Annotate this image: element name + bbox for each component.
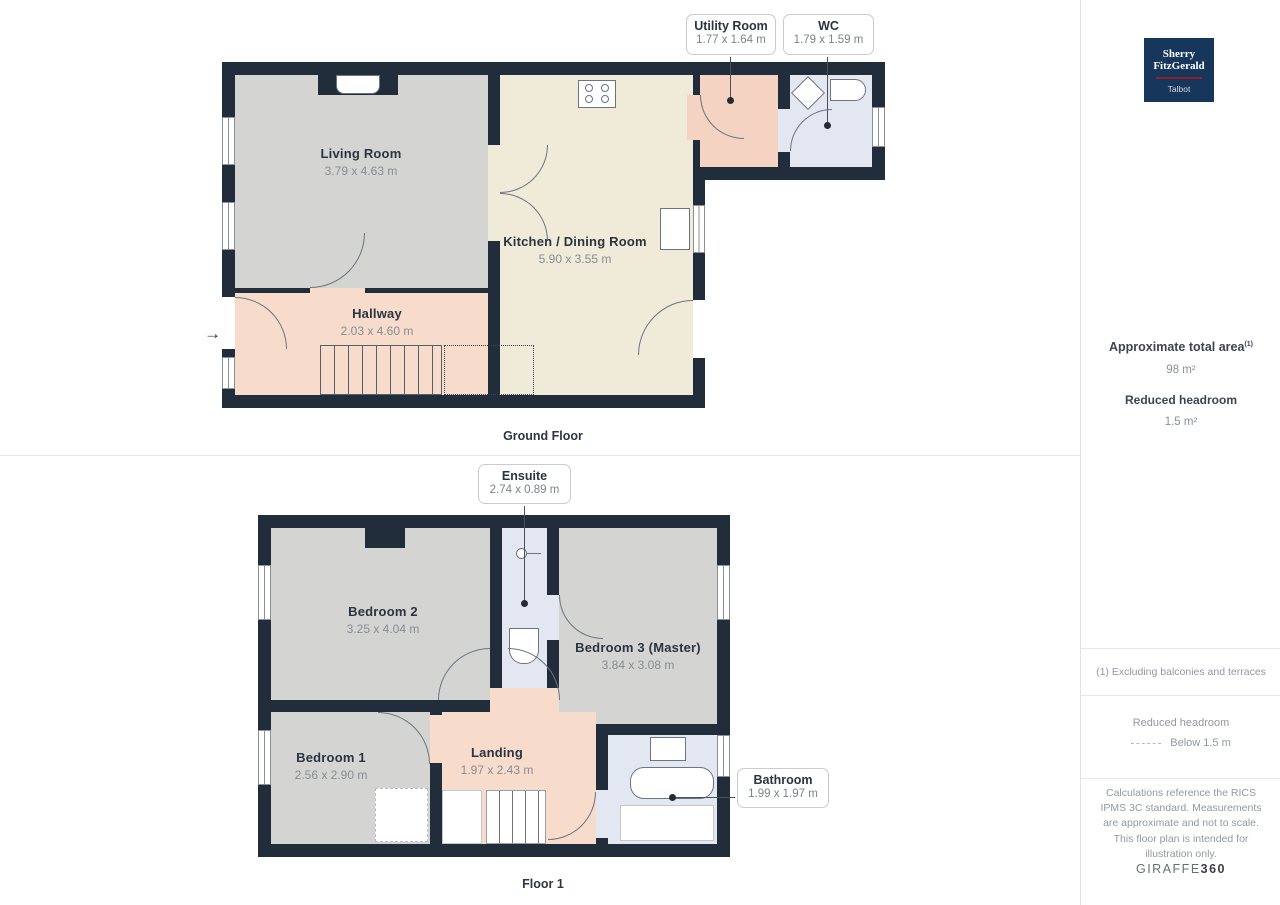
bathroom-sink-icon xyxy=(650,737,686,761)
leader-dot-utility xyxy=(727,97,734,104)
room-dims: 2.56 x 2.90 m xyxy=(256,768,406,782)
callout-name: Bathroom xyxy=(738,773,828,787)
logo-subtitle: Talbot xyxy=(1144,84,1214,94)
floorplan-page: Living Room 3.79 x 4.63 m Kitchen / Dini… xyxy=(0,0,1280,905)
room-dims: 3.79 x 4.63 m xyxy=(286,164,436,178)
fireplace-icon xyxy=(336,75,380,94)
brand-regular: GIRAFFE xyxy=(1136,862,1201,876)
room-dims: 3.25 x 4.04 m xyxy=(308,622,458,636)
room-label-landing: Landing 1.97 x 2.43 m xyxy=(422,745,572,777)
hob-ring-icon xyxy=(601,95,609,103)
room-name: Bedroom 2 xyxy=(308,604,458,619)
headroom-value: 1.5 m² xyxy=(1081,416,1280,428)
logo-line2: FitzGerald xyxy=(1144,61,1214,73)
window-living-2 xyxy=(222,202,235,250)
floor-1-caption: Floor 1 xyxy=(483,877,603,891)
window-hallway xyxy=(222,357,235,389)
door-gap-garden xyxy=(693,300,705,358)
room-dims: 3.84 x 3.08 m xyxy=(553,658,723,672)
area-summary: Approximate total area(1) 98 m² Reduced … xyxy=(1081,340,1280,428)
callout-bathroom: Bathroom 1.99 x 1.97 m xyxy=(737,768,829,808)
entrance-arrow-icon: → xyxy=(204,324,221,344)
callout-name: Utility Room xyxy=(687,19,775,33)
callout-name: Ensuite xyxy=(479,469,570,483)
door-gap-ensuite xyxy=(547,595,559,640)
leader-dot-ensuite xyxy=(521,600,528,607)
room-living xyxy=(235,75,488,288)
footnote: (1) Excluding balconies and terraces xyxy=(1089,666,1273,678)
room-dims: 2.03 x 4.60 m xyxy=(302,324,452,338)
chimney-notch xyxy=(365,528,405,548)
callout-dims: 1.79 x 1.59 m xyxy=(784,34,873,46)
room-name: Landing xyxy=(422,745,572,760)
leader-bathroom xyxy=(672,797,737,798)
room-label-bedroom2: Bedroom 2 3.25 x 4.04 m xyxy=(308,604,458,636)
headroom-title: Reduced headroom xyxy=(1081,393,1280,407)
callout-dims: 2.74 x 0.89 m xyxy=(479,484,570,496)
door-gap-bathroom xyxy=(596,790,608,838)
logo-accent-rule xyxy=(1156,77,1202,79)
room-name: Kitchen / Dining Room xyxy=(485,234,665,249)
shower-tray-icon xyxy=(620,805,714,841)
area-value: 98 m² xyxy=(1081,364,1280,376)
legend-title: Reduced headroom xyxy=(1089,717,1273,729)
window-living-1 xyxy=(222,117,235,165)
callout-ensuite: Ensuite 2.74 x 0.89 m xyxy=(478,464,571,504)
shower-line xyxy=(527,553,541,554)
room-label-hallway: Hallway 2.03 x 4.60 m xyxy=(302,306,452,338)
area-superscript: (1) xyxy=(1244,341,1253,348)
hob-ring-icon xyxy=(585,84,593,92)
dashed-line-icon xyxy=(1131,743,1161,744)
sidebar: Sherry FitzGerald Talbot Approximate tot… xyxy=(1080,0,1280,905)
ground-floor-caption: Ground Floor xyxy=(483,429,603,443)
stairs-ground xyxy=(320,345,442,395)
room-dims: 5.90 x 3.55 m xyxy=(485,252,665,266)
floor-1-plan xyxy=(258,515,730,857)
room-label-kitchen: Kitchen / Dining Room 5.90 x 3.55 m xyxy=(485,234,665,266)
room-name: Living Room xyxy=(286,146,436,161)
door-gap-entrance xyxy=(222,297,235,349)
sidebar-divider-3 xyxy=(1081,778,1280,779)
callout-utility: Utility Room 1.77 x 1.64 m xyxy=(686,14,776,55)
brand-bold: 360 xyxy=(1201,862,1226,876)
leader-dot-bathroom xyxy=(669,794,676,801)
door-gap-living-kitchen xyxy=(488,145,500,241)
wardrobe-dashed xyxy=(375,788,428,842)
room-label-bedroom3: Bedroom 3 (Master) 3.84 x 3.08 m xyxy=(553,640,723,672)
window-bedroom2 xyxy=(258,565,271,620)
area-title: Approximate total area(1) xyxy=(1081,340,1280,354)
agency-logo: Sherry FitzGerald Talbot xyxy=(1144,38,1214,102)
callout-dims: 1.99 x 1.97 m xyxy=(738,788,828,800)
room-name: Hallway xyxy=(302,306,452,321)
hob-icon xyxy=(578,80,616,108)
giraffe360-brand: GIRAFFE360 xyxy=(1081,862,1280,876)
window-wc xyxy=(872,107,885,147)
sidebar-divider-2 xyxy=(1081,695,1280,696)
leader-dot-wc xyxy=(824,122,831,129)
window-bedroom3 xyxy=(717,565,730,620)
legend-row: Below 1.5 m xyxy=(1081,737,1280,749)
callout-name: WC xyxy=(784,19,873,33)
window-kitchen xyxy=(693,205,705,253)
hob-ring-icon xyxy=(601,84,609,92)
door-gap-living-hall xyxy=(310,288,365,293)
leader-ensuite xyxy=(524,503,525,603)
window-bathroom xyxy=(717,735,730,777)
sidebar-divider-1 xyxy=(1081,648,1280,649)
room-name: Bedroom 1 xyxy=(256,750,406,765)
stair-landing-white xyxy=(442,790,482,844)
room-label-bedroom1: Bedroom 1 2.56 x 2.90 m xyxy=(256,750,406,782)
wc-toilet-icon xyxy=(830,79,866,101)
stairs-floor1 xyxy=(486,790,546,844)
door-gap-utility-wc xyxy=(778,109,790,152)
door-gap-kitchen-utility xyxy=(687,95,700,140)
disclaimer: Calculations reference the RICS IPMS 3C … xyxy=(1095,786,1267,862)
room-label-living: Living Room 3.79 x 4.63 m xyxy=(286,146,436,178)
legend-label: Below 1.5 m xyxy=(1170,737,1231,749)
room-name: Bedroom 3 (Master) xyxy=(553,640,723,655)
shower-head-icon xyxy=(516,548,527,559)
hob-ring-icon xyxy=(585,95,593,103)
room-dims: 1.97 x 2.43 m xyxy=(422,763,572,777)
panel-divider xyxy=(0,455,1080,456)
stairs-dotted-extension xyxy=(444,345,534,395)
callout-dims: 1.77 x 1.64 m xyxy=(687,34,775,46)
leader-utility xyxy=(730,55,731,100)
leader-wc xyxy=(827,55,828,125)
logo-line1: Sherry xyxy=(1144,49,1214,61)
callout-wc: WC 1.79 x 1.59 m xyxy=(783,14,874,55)
